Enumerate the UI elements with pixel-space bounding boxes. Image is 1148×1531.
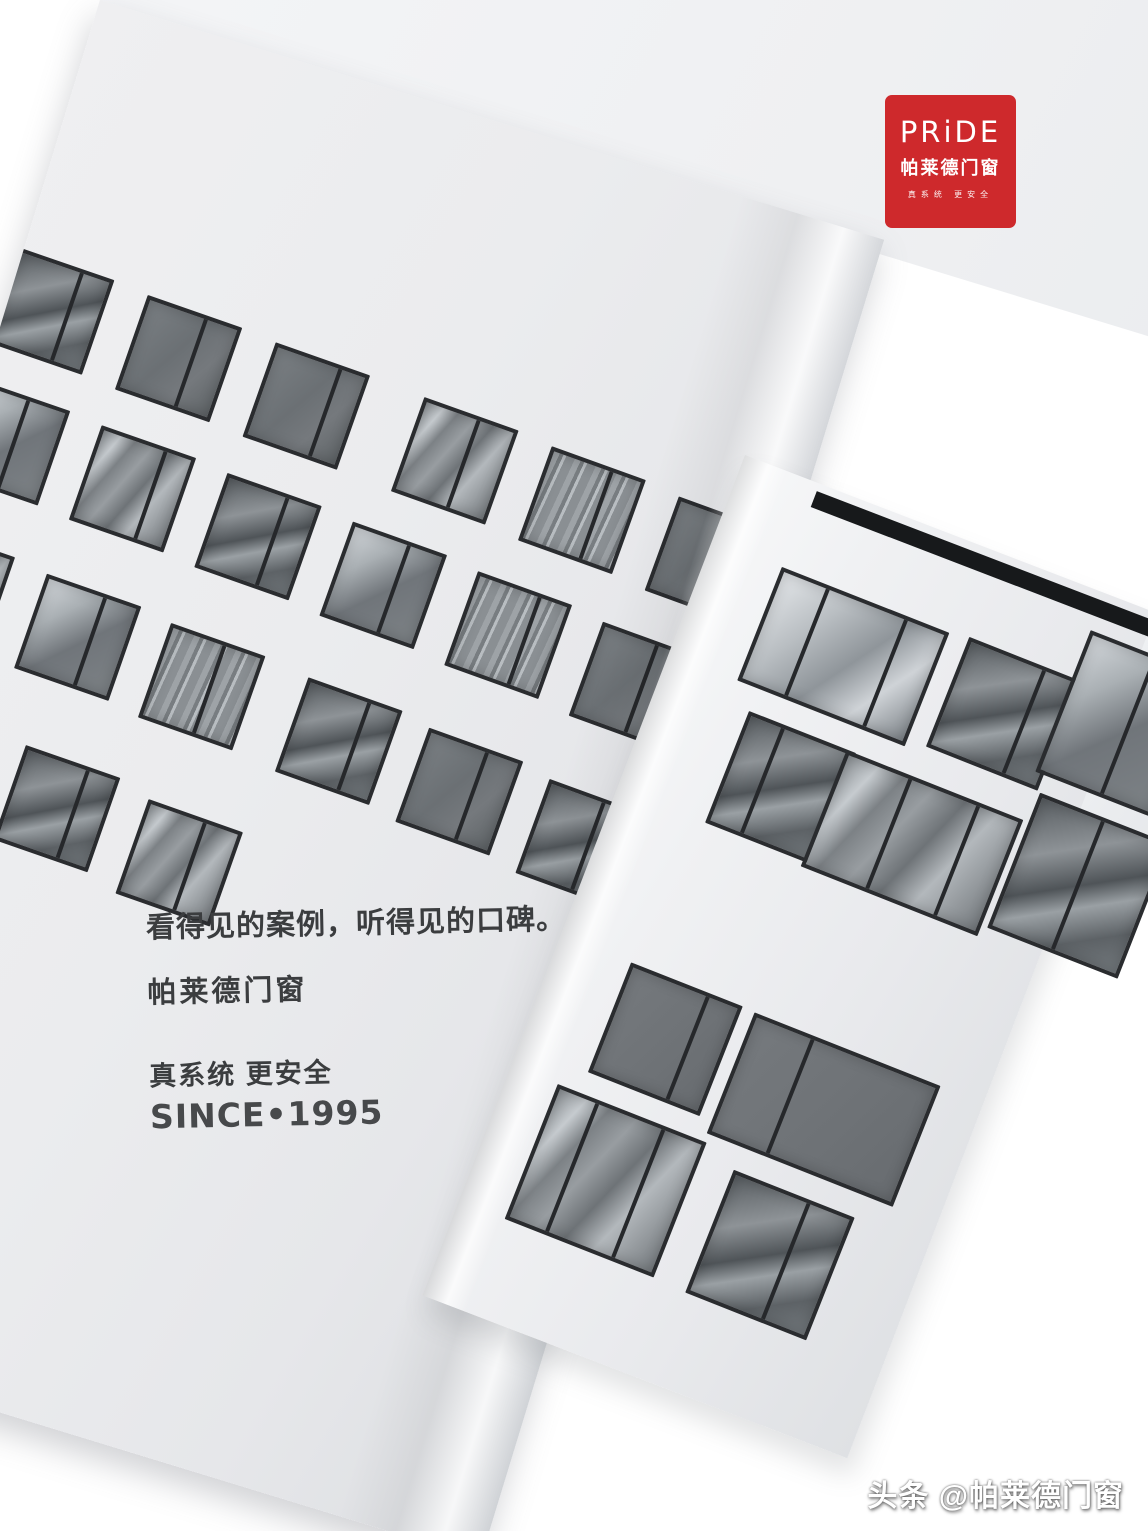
window-tile xyxy=(0,525,15,652)
window-mullion xyxy=(376,545,411,633)
window-mullion xyxy=(740,728,785,834)
slogan-line: 真系统 更安全 xyxy=(149,1046,570,1094)
window-mullion xyxy=(192,645,226,733)
window-mullion xyxy=(765,1039,814,1154)
window-mullion xyxy=(73,598,107,686)
window-mullion xyxy=(50,273,84,361)
window-mullion xyxy=(784,588,830,696)
window-tile xyxy=(275,677,403,805)
window-tile xyxy=(391,397,519,525)
window-mullion xyxy=(0,400,30,488)
brand-logo-card: PRiDE 帕莱德门窗 真系统 更安全 xyxy=(885,95,1016,228)
window-tile xyxy=(14,574,141,701)
logo-name-cn: 帕莱德门窗 xyxy=(885,154,1016,180)
window-mullion xyxy=(1100,659,1148,795)
window-tile xyxy=(685,1170,854,1341)
window-mullion xyxy=(1051,821,1105,950)
window-mullion xyxy=(336,702,371,790)
window-mullion xyxy=(454,752,489,840)
window-mullion xyxy=(666,996,710,1100)
window-tile xyxy=(138,623,266,751)
window-mullion xyxy=(933,805,980,915)
window-tile xyxy=(115,295,242,422)
window-mullion xyxy=(761,1203,810,1320)
window-mullion xyxy=(578,471,613,559)
window-mullion xyxy=(174,319,208,407)
window-tile xyxy=(194,473,322,601)
window-mullion xyxy=(506,597,541,685)
window-mullion xyxy=(612,1129,666,1258)
watermark: 头条 @帕莱德门窗 xyxy=(867,1471,1124,1515)
window-tile xyxy=(395,728,523,856)
window-tile xyxy=(444,571,572,699)
headline-block: 看得见的案例，听得见的口碑。 帕莱德门窗 真系统 更安全 SINCE•1995 xyxy=(146,896,571,1137)
window-mullion xyxy=(255,498,289,586)
window-tile xyxy=(243,342,371,470)
logo-wordmark: PRiDE xyxy=(885,115,1016,149)
window-tile xyxy=(0,378,70,505)
headline-line: 看得见的案例，听得见的口碑。 xyxy=(146,896,567,947)
window-tile xyxy=(588,962,743,1116)
window-tile xyxy=(518,446,646,574)
brand-line: 帕莱德门窗 xyxy=(147,961,568,1012)
window-mullion xyxy=(862,619,908,727)
window-tile xyxy=(0,248,114,375)
window-mullion xyxy=(446,420,481,508)
window-tile xyxy=(319,522,447,650)
window-mullion xyxy=(865,779,912,889)
right-window-grid xyxy=(745,455,1148,618)
window-mullion xyxy=(55,770,89,858)
window-mullion xyxy=(133,451,167,539)
window-tile xyxy=(0,745,120,872)
window-mullion xyxy=(308,369,342,457)
window-tile xyxy=(69,425,196,552)
window-mullion xyxy=(173,823,207,911)
logo-slogan: 真系统 更安全 xyxy=(885,189,1016,200)
poster-scene: 看得见的案例，听得见的口碑。 帕莱德门窗 真系统 更安全 SINCE•1995 … xyxy=(0,0,1148,1531)
